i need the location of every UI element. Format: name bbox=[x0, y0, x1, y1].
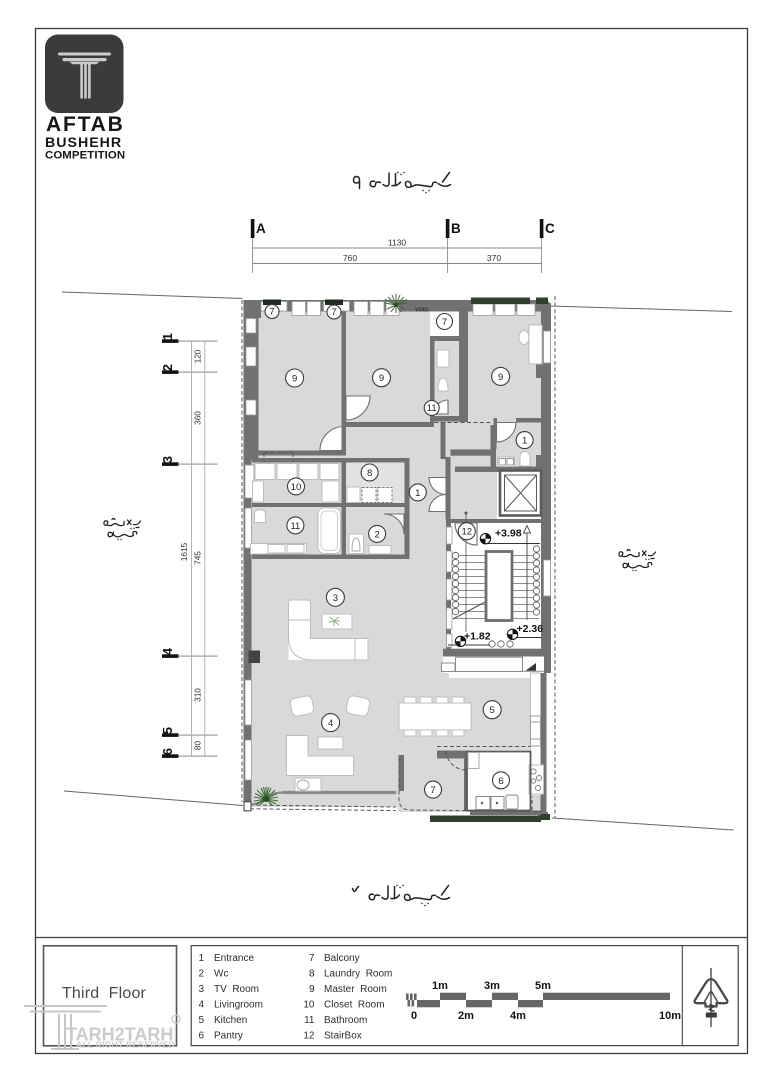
svg-text:Bathroom: Bathroom bbox=[324, 1015, 367, 1026]
svg-text:5m: 5m bbox=[535, 980, 551, 992]
svg-text:120: 120 bbox=[193, 349, 203, 363]
svg-text:1: 1 bbox=[160, 333, 175, 340]
svg-text:7: 7 bbox=[331, 307, 336, 318]
svg-text:11: 11 bbox=[304, 1015, 315, 1026]
svg-text:StairBox: StairBox bbox=[324, 1031, 362, 1042]
svg-text:0: 0 bbox=[411, 1010, 417, 1022]
svg-text:+1.82: +1.82 bbox=[464, 631, 491, 643]
svg-text:10: 10 bbox=[303, 1000, 315, 1011]
svg-text:VOID: VOID bbox=[415, 308, 428, 314]
svg-text:6: 6 bbox=[198, 1031, 204, 1042]
svg-text:1: 1 bbox=[522, 436, 527, 447]
svg-text:AFTAB: AFTAB bbox=[46, 113, 125, 136]
svg-text:760: 760 bbox=[343, 253, 357, 263]
svg-text:2m: 2m bbox=[458, 1010, 474, 1022]
svg-text:TV Room: TV Room bbox=[214, 984, 259, 995]
svg-text:3: 3 bbox=[333, 593, 338, 604]
svg-text:5: 5 bbox=[490, 705, 495, 716]
svg-text:Entrance: Entrance bbox=[214, 953, 254, 964]
svg-text:1m: 1m bbox=[432, 980, 448, 992]
svg-text:7: 7 bbox=[430, 785, 435, 796]
svg-text:COMPETITION: COMPETITION bbox=[45, 150, 125, 162]
svg-text:A: A bbox=[256, 221, 266, 236]
svg-text:2: 2 bbox=[160, 364, 175, 371]
svg-text:360: 360 bbox=[193, 411, 203, 425]
svg-text:4: 4 bbox=[328, 718, 333, 729]
svg-text:11: 11 bbox=[427, 403, 437, 414]
svg-text:Wc: Wc bbox=[214, 969, 228, 980]
svg-text:4: 4 bbox=[160, 647, 175, 655]
svg-text:8: 8 bbox=[367, 468, 372, 479]
svg-text:2: 2 bbox=[374, 529, 379, 540]
svg-text:Laundry Room: Laundry Room bbox=[324, 969, 392, 980]
svg-text:+3.98: +3.98 bbox=[495, 528, 522, 540]
svg-text:ALL RIGHT RESERVED: ALL RIGHT RESERVED bbox=[76, 1040, 175, 1050]
svg-text:5: 5 bbox=[198, 1015, 204, 1026]
svg-text:8: 8 bbox=[309, 969, 315, 980]
svg-text:12: 12 bbox=[303, 1031, 315, 1042]
svg-text:3: 3 bbox=[160, 456, 175, 463]
svg-text:1615: 1615 bbox=[179, 542, 189, 561]
svg-text:Third Floor: Third Floor bbox=[62, 985, 147, 1002]
svg-text:10: 10 bbox=[291, 482, 302, 493]
svg-text:9: 9 bbox=[379, 373, 384, 384]
svg-text:6: 6 bbox=[498, 776, 503, 787]
svg-text:B: B bbox=[451, 221, 461, 236]
svg-text:4m: 4m bbox=[510, 1010, 526, 1022]
svg-text:7: 7 bbox=[442, 317, 447, 328]
svg-text:+2.36: +2.36 bbox=[517, 623, 544, 635]
svg-text:Closet Room: Closet Room bbox=[324, 1000, 385, 1011]
svg-text:Balcony: Balcony bbox=[324, 953, 360, 964]
svg-text:3: 3 bbox=[198, 984, 204, 995]
svg-text:C: C bbox=[545, 221, 555, 236]
svg-text:1: 1 bbox=[415, 488, 420, 499]
svg-text:310: 310 bbox=[193, 688, 203, 702]
svg-text:9: 9 bbox=[292, 374, 297, 385]
svg-text:9: 9 bbox=[498, 372, 503, 383]
svg-text:745: 745 bbox=[193, 551, 203, 565]
svg-text:5: 5 bbox=[160, 727, 175, 734]
svg-text:6: 6 bbox=[160, 748, 175, 755]
svg-text:12: 12 bbox=[462, 527, 473, 538]
svg-text:1: 1 bbox=[198, 953, 204, 964]
svg-text:2: 2 bbox=[198, 969, 204, 980]
svg-text:9: 9 bbox=[309, 984, 315, 995]
svg-text:10m: 10m bbox=[659, 1010, 681, 1022]
svg-text:7: 7 bbox=[309, 953, 315, 964]
svg-text:4: 4 bbox=[198, 1000, 204, 1011]
svg-text:Master Room: Master Room bbox=[324, 984, 387, 995]
svg-text:7: 7 bbox=[269, 307, 274, 318]
svg-text:80: 80 bbox=[193, 741, 203, 751]
svg-text:Kitchen: Kitchen bbox=[214, 1015, 247, 1026]
svg-text:1130: 1130 bbox=[388, 238, 407, 248]
svg-text:Livingroom: Livingroom bbox=[214, 1000, 263, 1011]
svg-text:Pantry: Pantry bbox=[214, 1031, 243, 1042]
svg-text:3m: 3m bbox=[484, 980, 500, 992]
svg-text:370: 370 bbox=[487, 253, 501, 263]
svg-text:11: 11 bbox=[290, 521, 300, 532]
